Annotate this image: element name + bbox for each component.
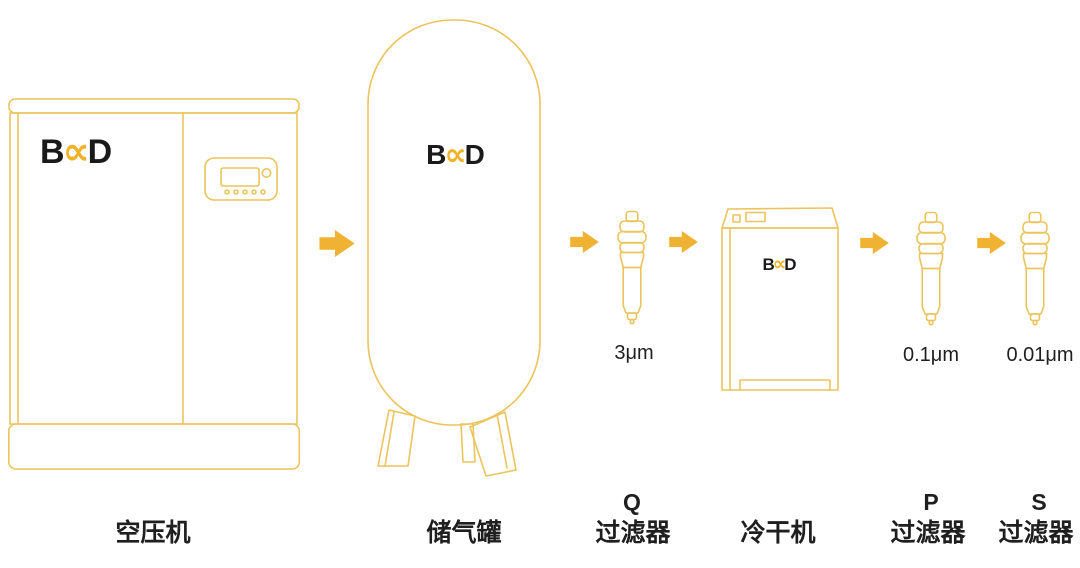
dryer-display — [746, 213, 765, 222]
compressor-base — [9, 424, 300, 469]
panel-button — [261, 190, 265, 194]
display-screen — [221, 168, 259, 186]
tank-legs — [378, 410, 516, 476]
p-filter-label: 过滤器 — [890, 519, 965, 548]
panel-button — [243, 190, 247, 194]
compressor-top-lid — [9, 99, 299, 113]
flow-arrow-icon — [569, 231, 600, 253]
q-filter-letter: Q — [623, 491, 641, 514]
tank-label: 储气罐 — [426, 519, 501, 548]
dryer-top-button — [733, 215, 740, 222]
s-filter-letter: S — [1031, 491, 1046, 514]
logo-letter-d: D — [784, 256, 795, 273]
infinity-icon: ∝ — [63, 133, 89, 171]
panel-button — [252, 190, 256, 194]
bod-logo: B∝D — [762, 255, 795, 274]
compressor-label: 空压机 — [115, 519, 190, 548]
p-filter-rating: 0.1μm — [903, 345, 959, 365]
flow-arrow-icon — [316, 230, 358, 257]
q-filter-label: 过滤器 — [595, 519, 670, 548]
s-filter-illustration — [1017, 211, 1053, 326]
bod-logo: B∝D — [426, 139, 484, 170]
compressor-control-panel — [205, 158, 277, 200]
dryer-base-notch — [740, 380, 830, 390]
logo-letter-b: B — [426, 141, 445, 169]
s-filter-rating: 0.01μm — [1006, 345, 1073, 365]
logo-letter-b: B — [40, 135, 64, 169]
air-tank-illustration — [358, 14, 544, 492]
infinity-icon: ∝ — [444, 139, 465, 170]
flow-arrow-icon — [859, 232, 890, 254]
logo-letter-d: D — [88, 135, 112, 169]
dryer-front-face — [722, 228, 838, 390]
panel-button — [234, 190, 238, 194]
tank-vessel — [368, 20, 540, 425]
q-filter-rating: 3μm — [614, 343, 653, 363]
p-filter-letter: P — [923, 491, 938, 514]
flow-arrow-icon — [976, 232, 1007, 254]
s-filter-label: 过滤器 — [998, 519, 1073, 548]
dryer-illustration — [714, 202, 846, 394]
logo-letter-d: D — [465, 141, 484, 169]
p-filter-illustration — [913, 211, 949, 326]
power-led — [262, 169, 270, 177]
flow-arrow-icon — [668, 231, 699, 253]
bod-logo: B∝D — [40, 133, 111, 171]
panel-button — [225, 190, 229, 194]
air-system-flow-diagram: B∝D B∝D B∝D — [0, 0, 1080, 568]
dryer-label: 冷干机 — [740, 519, 815, 548]
q-filter-illustration — [614, 210, 650, 325]
